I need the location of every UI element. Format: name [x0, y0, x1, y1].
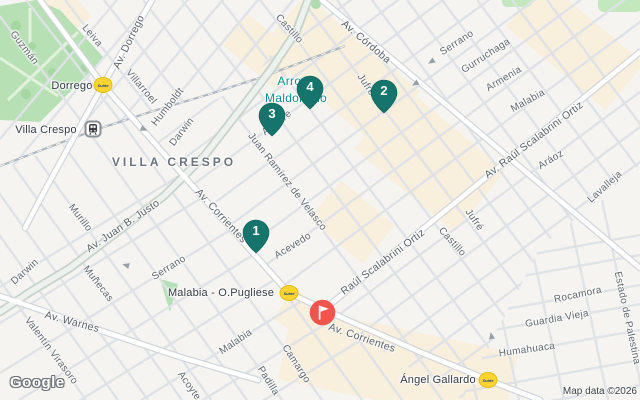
- pin-number: 3: [258, 106, 286, 121]
- subte-station-icon[interactable]: Subte: [479, 372, 498, 388]
- flag-icon: [309, 299, 336, 326]
- map-pin-3[interactable]: 3: [258, 102, 286, 137]
- map-base-layer: [0, 0, 640, 400]
- google-logo[interactable]: Google: [10, 374, 65, 391]
- train-icon: [88, 123, 99, 135]
- subte-station-icon[interactable]: Subte: [280, 285, 299, 301]
- map-attribution[interactable]: Map data ©2026: [563, 386, 637, 397]
- map-pin-4[interactable]: 4: [296, 75, 324, 110]
- pin-number: 2: [370, 83, 398, 98]
- pin-number: 1: [242, 223, 270, 238]
- map-canvas[interactable]: GuzmánLeivaAv. DorregoVillarroelHumboldt…: [0, 0, 640, 400]
- subte-station-icon[interactable]: Subte: [94, 77, 113, 93]
- map-pin-1[interactable]: 1: [242, 219, 270, 254]
- destination-flag-pin[interactable]: [309, 299, 336, 326]
- train-station-icon[interactable]: [85, 121, 102, 138]
- map-pin-2[interactable]: 2: [370, 79, 398, 114]
- pin-number: 4: [296, 79, 324, 94]
